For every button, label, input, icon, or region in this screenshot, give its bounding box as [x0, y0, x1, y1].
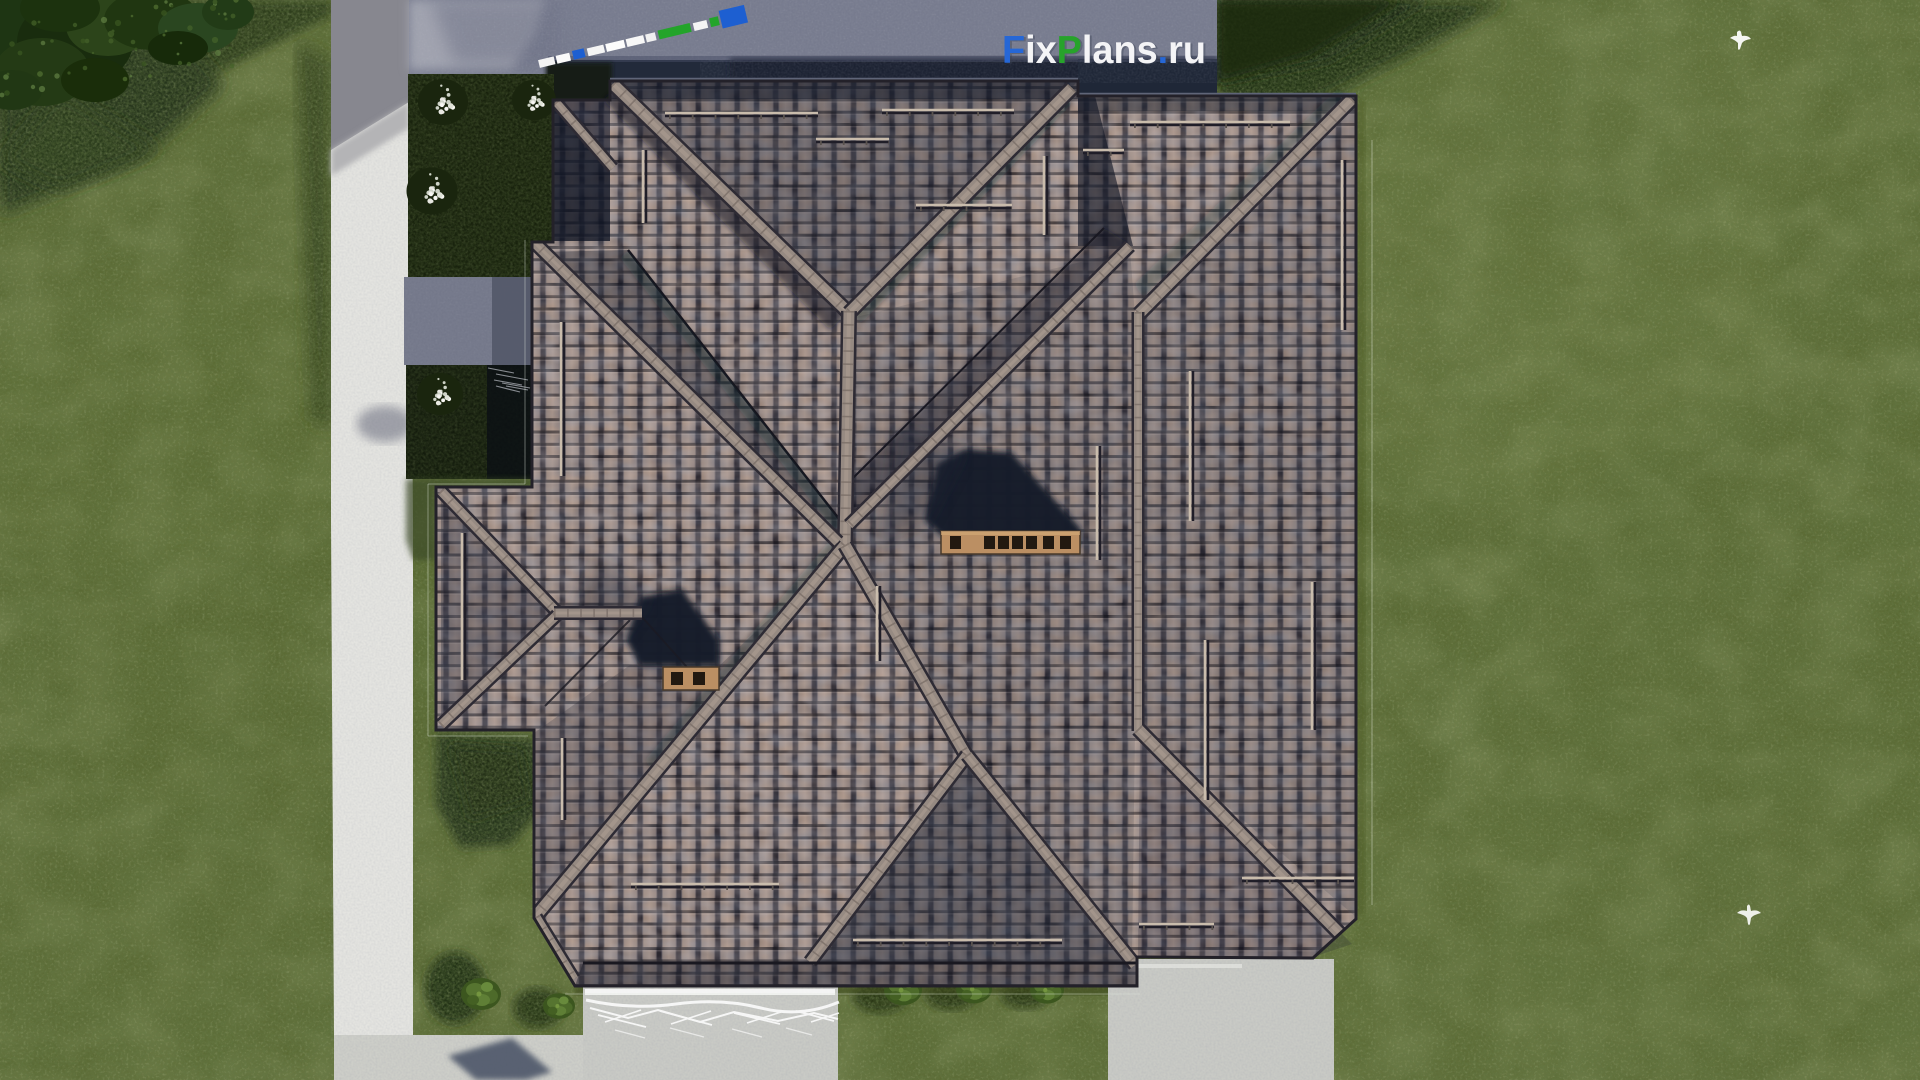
svg-text:FixPlans.ru: FixPlans.ru [1002, 29, 1206, 72]
